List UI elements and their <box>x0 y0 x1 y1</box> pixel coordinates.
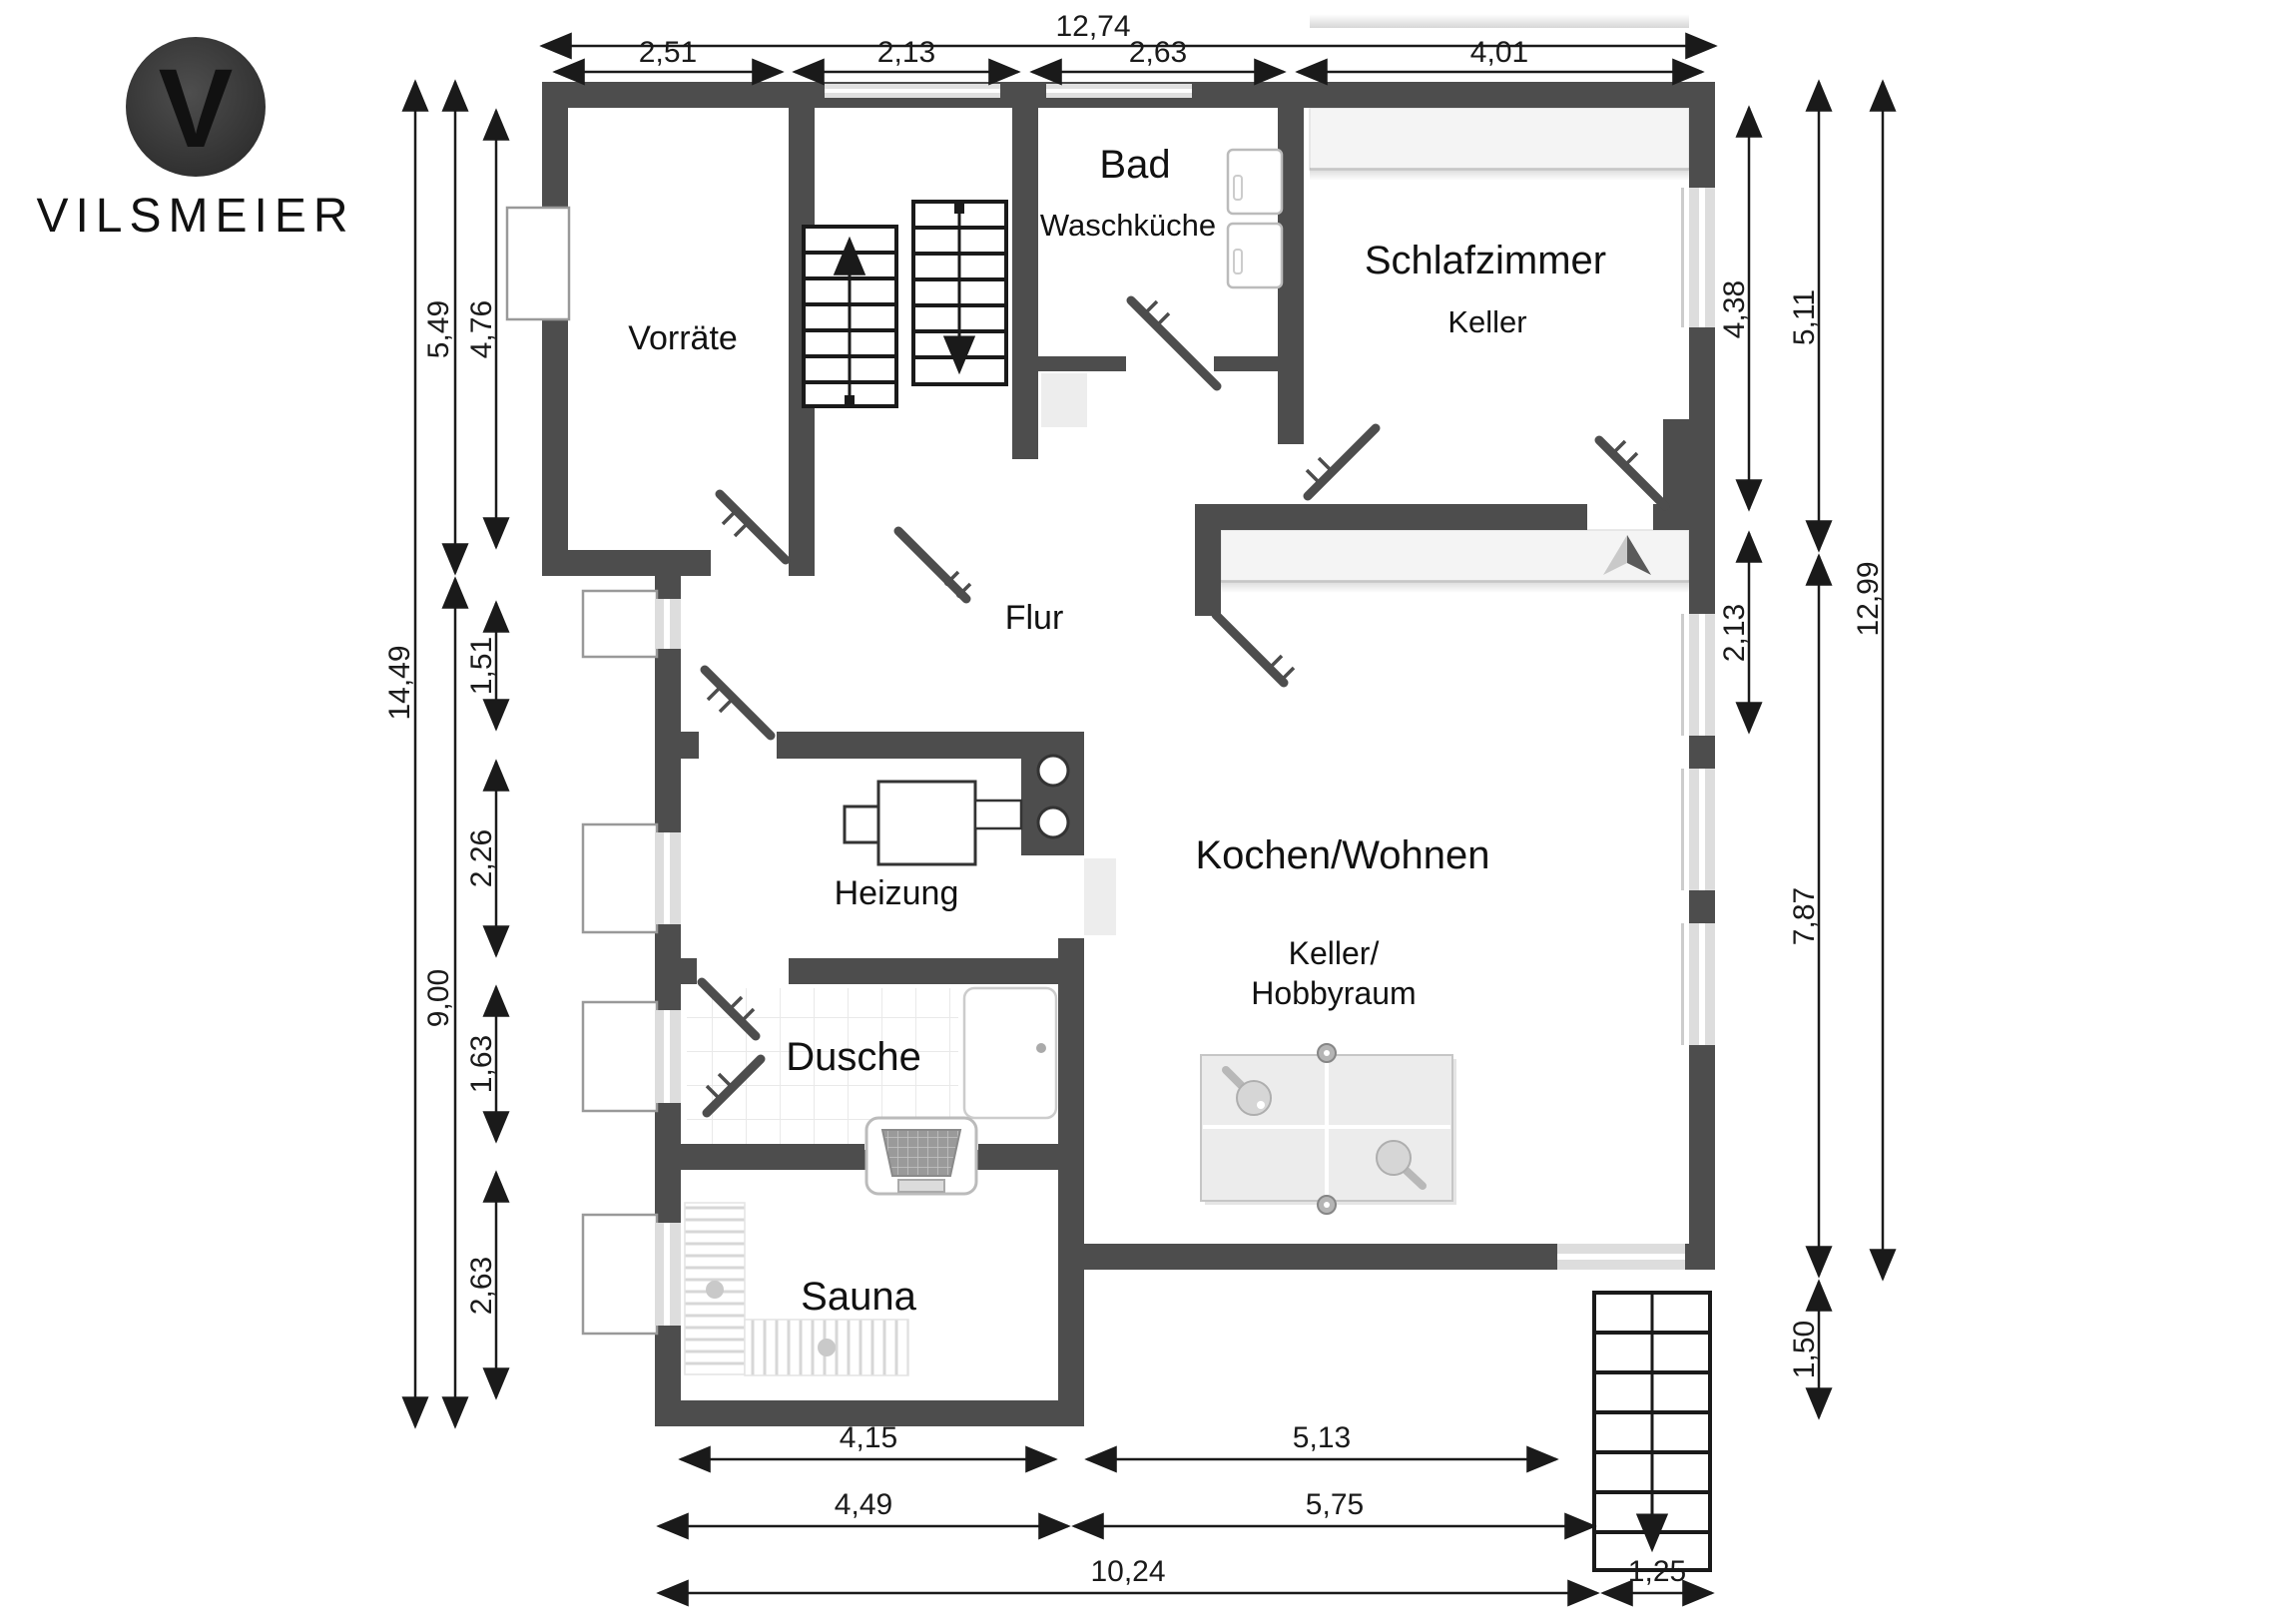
door-recess <box>1041 373 1087 427</box>
stair-up <box>804 227 896 406</box>
dim-label: 1,25 <box>1628 1555 1686 1588</box>
dim-label: 10,24 <box>1090 1555 1165 1588</box>
room-label-sauna: Sauna <box>801 1275 916 1319</box>
dim-label: 1,51 <box>465 637 498 695</box>
room-label-bad: Bad <box>1099 143 1170 187</box>
floor-plan-drawing: V VILSMEIER <box>0 0 2296 1623</box>
logo-letter: V <box>159 46 234 171</box>
boiler <box>845 782 1021 864</box>
drain-icon <box>1036 1043 1046 1053</box>
room-label-schlafzimmer: Schlafzimmer <box>1365 239 1606 282</box>
dim-label: 5,49 <box>422 300 455 358</box>
dim-label: 2,63 <box>465 1257 498 1315</box>
dim-label: 5,75 <box>1306 1488 1364 1521</box>
dim-label: 4,01 <box>1470 36 1528 69</box>
dim-label: 4,49 <box>835 1488 892 1521</box>
dim-label: 2,26 <box>465 829 498 887</box>
dim-left: 14,49 5,49 9,00 4,76 1,51 2,26 1,63 2,63 <box>383 82 498 1426</box>
logo-name: VILSMEIER <box>36 190 354 243</box>
dim-label: 7,87 <box>1788 887 1821 945</box>
room-label-flur: Flur <box>1005 599 1064 637</box>
dim-right: 4,38 2,13 5,11 7,87 1,50 12,99 <box>1718 82 1885 1417</box>
stair-down <box>913 202 1006 384</box>
floor-plan-page: V VILSMEIER <box>0 0 2296 1623</box>
window-box <box>507 208 569 319</box>
room-label-schlafzimmer-sub: Keller <box>1447 304 1526 339</box>
dim-label: 4,38 <box>1718 280 1751 338</box>
wall-recess <box>1084 858 1116 935</box>
logo: V VILSMEIER <box>36 37 354 243</box>
stair-exterior <box>1594 1293 1710 1570</box>
room-label-heizung: Heizung <box>835 874 959 912</box>
dim-label: 2,13 <box>877 36 935 69</box>
dim-label: 1,50 <box>1788 1321 1821 1378</box>
dim-label: 4,15 <box>840 1421 897 1454</box>
dim-label: 5,13 <box>1293 1421 1351 1454</box>
room-label-kochen-wohnen: Kochen/Wohnen <box>1195 833 1489 877</box>
dim-label: 14,49 <box>383 645 416 720</box>
dim-label: 5,11 <box>1788 289 1821 345</box>
dim-label: 2,51 <box>639 36 697 69</box>
washing-machines <box>1228 150 1282 287</box>
dim-bottom: 4,15 5,13 4,49 5,75 10,24 1,25 <box>659 1421 1712 1593</box>
sauna-oven <box>866 1118 976 1194</box>
dim-label: 9,00 <box>422 969 455 1027</box>
room-label-vorraete: Vorräte <box>628 319 738 357</box>
room-label-hobbyraum-2: Hobbyraum <box>1251 975 1416 1011</box>
room-label-dusche: Dusche <box>786 1035 921 1079</box>
dim-label: 1,63 <box>465 1035 498 1093</box>
dim-label: 12,99 <box>1852 561 1885 636</box>
room-label-waschkueche: Waschküche <box>1040 208 1216 243</box>
bathtub <box>964 988 1056 1118</box>
dim-label: 2,13 <box>1718 604 1751 662</box>
room-label-hobbyraum-1: Keller/ <box>1289 935 1380 971</box>
table-tennis <box>1201 1044 1456 1214</box>
dim-label: 4,76 <box>465 300 498 358</box>
dim-label: 12,74 <box>1055 10 1130 43</box>
dim-label: 2,63 <box>1129 36 1187 69</box>
